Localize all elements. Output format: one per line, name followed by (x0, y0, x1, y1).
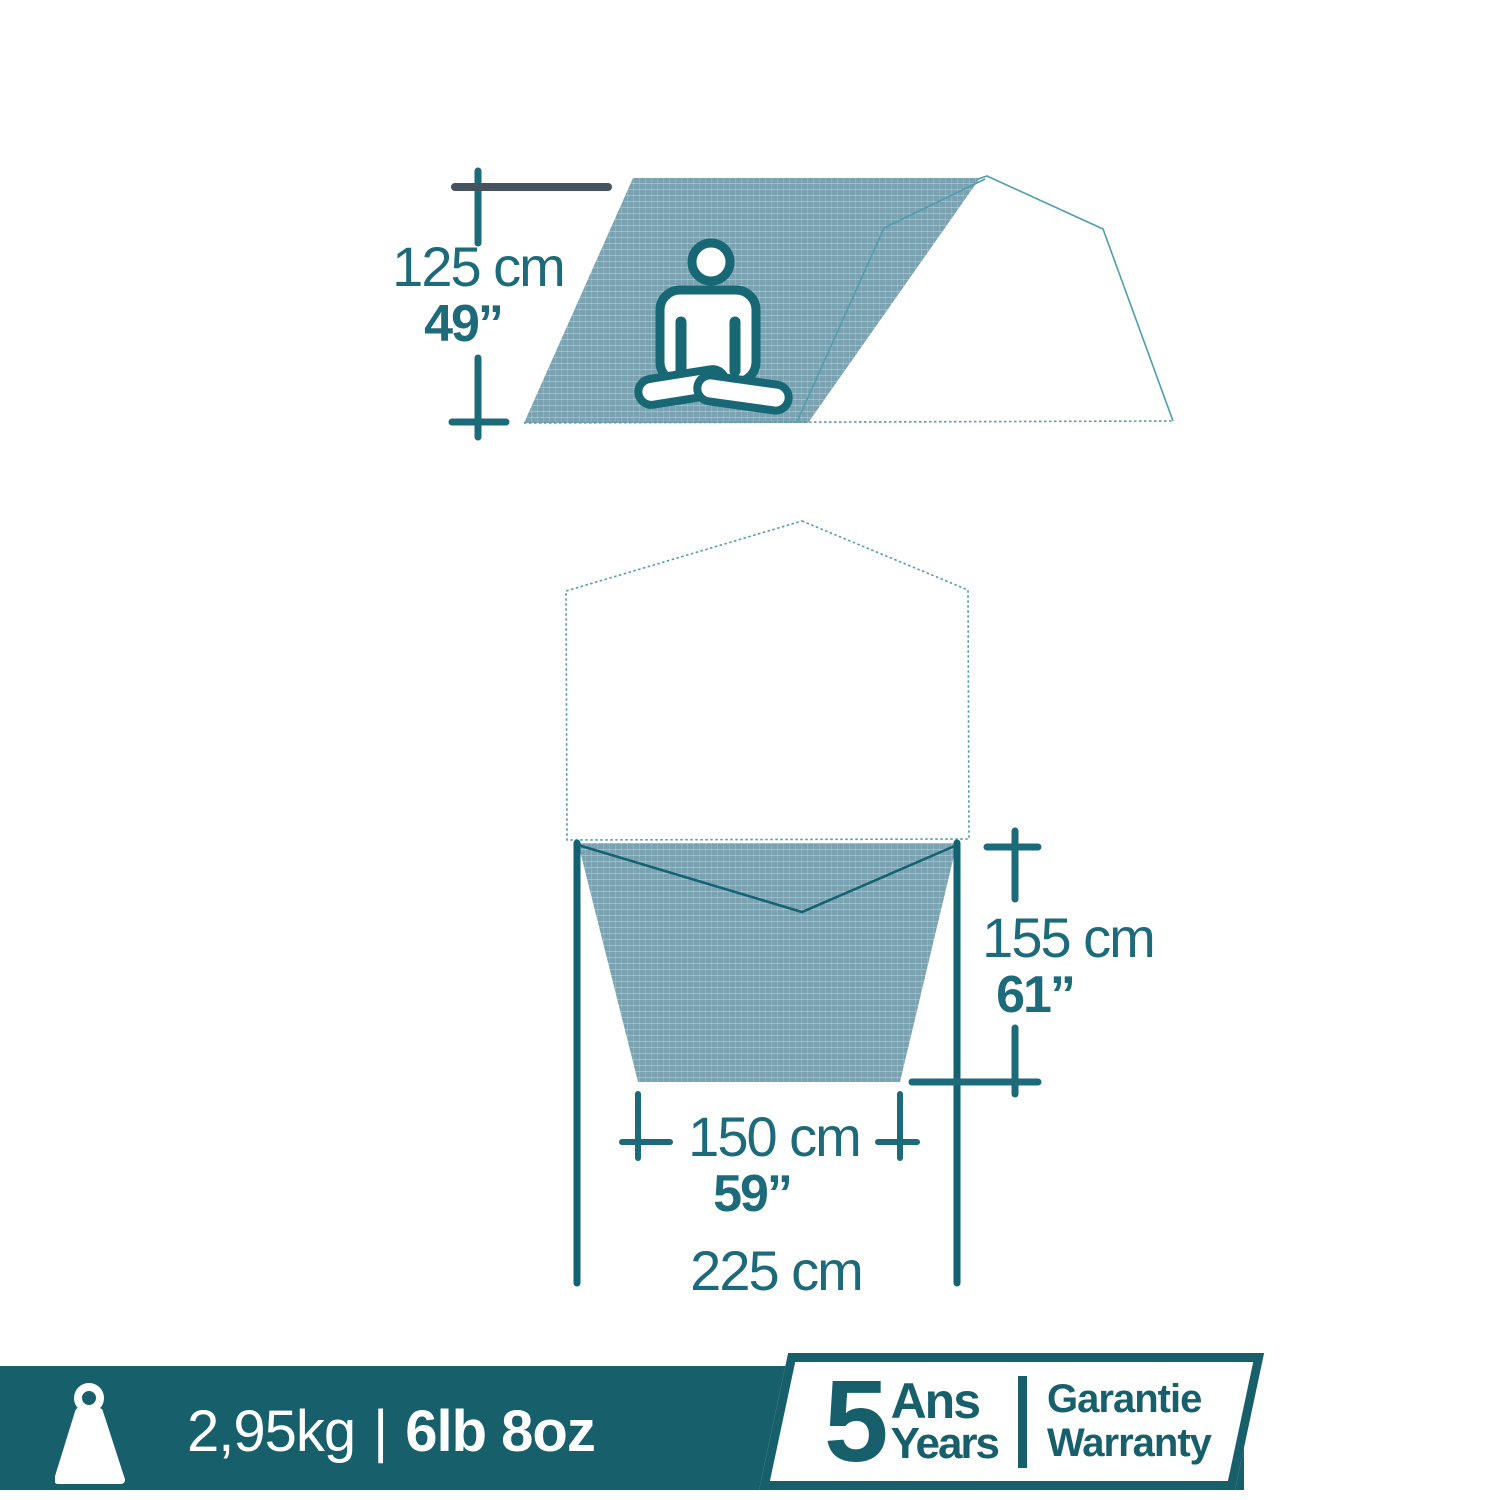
side-view-diagram (452, 171, 1173, 437)
depth-cm-label: 155 cm (982, 910, 1154, 966)
total-width-cm-label: 225 cm (690, 1243, 862, 1299)
warranty-label-fr: Garantie (1047, 1378, 1211, 1421)
warranty-unit-fr: Ans (891, 1378, 998, 1424)
warranty-label-en: Warranty (1047, 1422, 1211, 1465)
weight-text: 2,95kg | 6lb 8oz (187, 1403, 595, 1461)
side-height-cm-label: 125 cm (392, 239, 564, 295)
inner-width-cm-label: 150 cm (688, 1109, 860, 1165)
weight-metric-value: 2,95kg (187, 1403, 355, 1461)
warranty-unit-en: Years (891, 1424, 998, 1464)
side-height-in-label: 49” (424, 298, 502, 350)
weight-icon (55, 1379, 139, 1485)
warranty-years-number: 5 (824, 1374, 885, 1469)
top-view-diagram (566, 521, 1038, 1283)
warranty-divider (1018, 1376, 1027, 1468)
depth-in-label: 61” (996, 969, 1074, 1021)
warranty-badge-content: 5 Ans Years Garantie Warranty (795, 1358, 1240, 1485)
side-view-tent-outline (978, 176, 1173, 421)
inner-width-in-label: 59” (713, 1168, 791, 1220)
top-view-tent-outline (566, 521, 969, 840)
warranty-labels: Garantie Warranty (1047, 1378, 1211, 1464)
top-view-shaded-floor (578, 843, 957, 1082)
weight-imperial-value: 6lb 8oz (405, 1403, 595, 1461)
warranty-units: Ans Years (891, 1378, 998, 1464)
weight-group: 2,95kg | 6lb 8oz (55, 1378, 595, 1486)
weight-separator: | (373, 1403, 387, 1461)
tent-dimensions-infographic: 125 cm 49” 155 cm 61” 150 cm 59” 225 cm … (0, 0, 1500, 1500)
